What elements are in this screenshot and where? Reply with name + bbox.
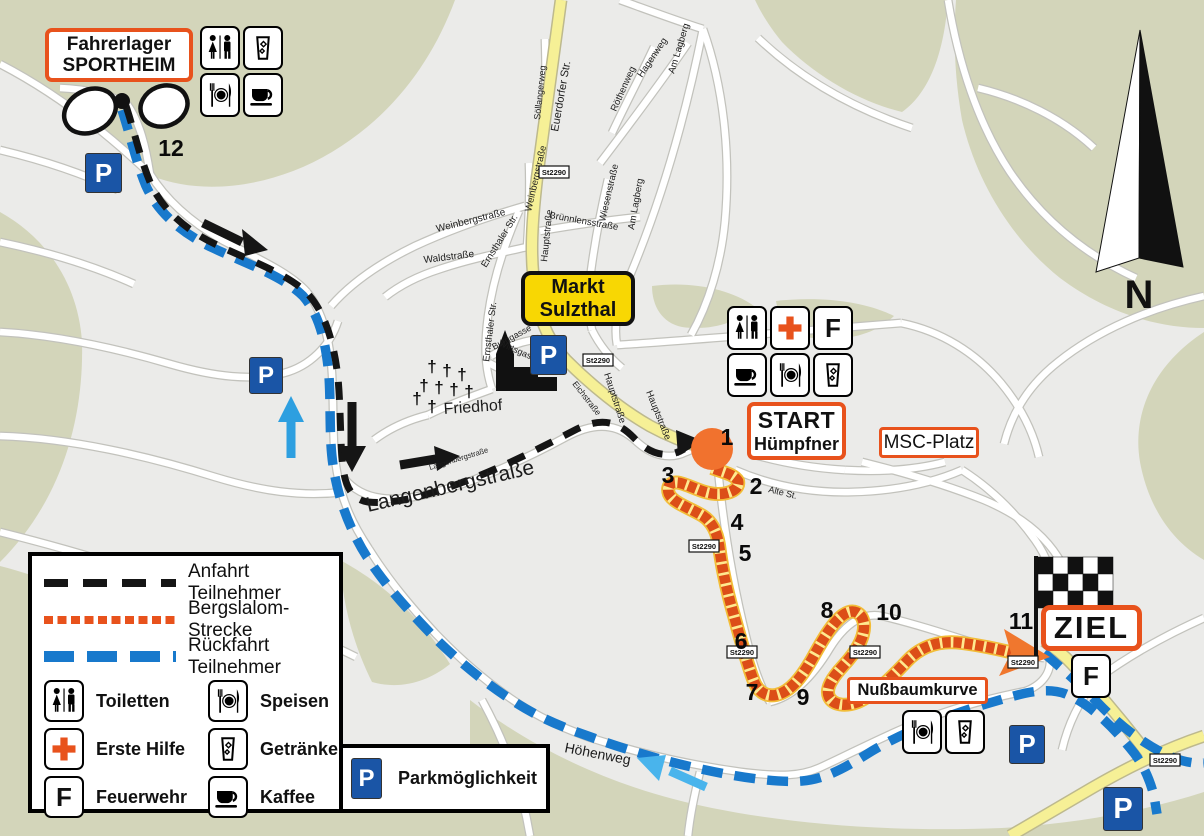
toilets-icon bbox=[44, 680, 84, 722]
parking-sign: P bbox=[1103, 787, 1143, 831]
legend-line-sample bbox=[44, 651, 176, 662]
first-aid-icon bbox=[44, 728, 84, 770]
flag-checker bbox=[1038, 557, 1053, 574]
road-badge-text: St2290 bbox=[542, 168, 566, 177]
road-badge-text: St2290 bbox=[586, 356, 610, 365]
flag-checker bbox=[1098, 557, 1113, 574]
legend-item-label: Speisen bbox=[260, 691, 338, 712]
food-icon bbox=[770, 353, 810, 397]
flag-checker bbox=[1053, 574, 1068, 591]
ziel-fire: F bbox=[1071, 654, 1111, 698]
course-number: 9 bbox=[797, 684, 810, 710]
parking-sign-icon: P bbox=[351, 758, 382, 799]
start-label: START Hümpfner bbox=[747, 402, 846, 460]
course-number: 7 bbox=[746, 679, 759, 705]
course-number: 4 bbox=[731, 509, 744, 535]
course-number: 11 bbox=[1009, 608, 1034, 634]
parking-sign: P bbox=[85, 153, 122, 193]
course-number: 3 bbox=[662, 462, 675, 488]
legend-item-label: Getränke bbox=[260, 739, 338, 760]
fahrerlager-label: Fahrerlager SPORTHEIM bbox=[45, 28, 193, 82]
flag-checker bbox=[1083, 574, 1098, 591]
legend: Anfahrt TeilnehmerBergslalom-StreckeRück… bbox=[28, 552, 343, 813]
coffee-icon bbox=[727, 353, 767, 397]
street-label: Am Lagberg bbox=[626, 178, 646, 231]
food-icon bbox=[902, 710, 942, 754]
coffee-icon bbox=[243, 73, 283, 117]
ziel-label: ZIEL bbox=[1041, 605, 1142, 651]
cemetery-cross: † bbox=[449, 380, 458, 399]
cemetery-cross: † bbox=[427, 357, 436, 376]
fire-brigade-icon: F bbox=[1071, 654, 1111, 698]
road-badge-text: St2290 bbox=[1153, 756, 1177, 765]
cemetery-cross: † bbox=[412, 389, 421, 408]
flag-checker bbox=[1068, 557, 1083, 574]
legend-line-anfahrt: Anfahrt Teilnehmer bbox=[44, 564, 335, 601]
legend-item-label: Toiletten bbox=[96, 691, 202, 712]
compass-label: N bbox=[1125, 273, 1154, 317]
street-label: Friedhof bbox=[443, 397, 503, 418]
legend-parking-label: Parkmöglichkeit bbox=[398, 768, 537, 789]
street-label: Weinbergstraße bbox=[435, 207, 507, 235]
map-canvas: ††††††††† N Euerdorfer Str.SöllangerwegR… bbox=[0, 0, 1204, 836]
parking-sign: P bbox=[1009, 725, 1045, 764]
drinks-icon bbox=[243, 26, 283, 70]
legend-line-strecke: Bergslalom-Strecke bbox=[44, 601, 335, 638]
road-badge-text: St2290 bbox=[692, 542, 716, 551]
legend-parking: P Parkmöglichkeit bbox=[339, 744, 550, 813]
msc-platz-label: MSC-Platz bbox=[879, 427, 979, 458]
road-badge-text: St2290 bbox=[853, 648, 877, 657]
course-number: 8 bbox=[821, 597, 834, 623]
road bbox=[862, 462, 1062, 564]
fire-brigade-icon: F bbox=[813, 306, 853, 350]
course-number: 6 bbox=[735, 628, 748, 654]
legend-line-sample bbox=[44, 616, 176, 624]
nussbaum-services bbox=[902, 710, 985, 754]
course-number: 2 bbox=[750, 473, 763, 499]
start-line2: Hümpfner bbox=[754, 434, 839, 454]
flag-checker bbox=[1083, 557, 1098, 574]
flag-checker bbox=[1098, 574, 1113, 591]
nussbaumkurve-label: Nußbaumkurve bbox=[847, 677, 988, 704]
markt-line1: Markt bbox=[551, 276, 604, 298]
fire-brigade-icon: F bbox=[44, 776, 84, 818]
paddock-node bbox=[114, 93, 130, 109]
flag-checker bbox=[1053, 557, 1068, 574]
flag-checker bbox=[1068, 574, 1083, 591]
course-number: 5 bbox=[739, 540, 752, 566]
legend-line-rueckfahrt: Rückfahrt Teilnehmer bbox=[44, 638, 335, 675]
street-label: Hauptstraße bbox=[539, 209, 555, 262]
drinks-icon bbox=[813, 353, 853, 397]
fahrerlager-services bbox=[200, 26, 283, 117]
course-number: 10 bbox=[876, 599, 902, 625]
markt-sulzthal-sign: Markt Sulzthal bbox=[521, 271, 635, 326]
legend-item-label: Feuerwehr bbox=[96, 787, 202, 808]
course-number: 12 bbox=[158, 135, 184, 161]
fahrerlager-line1: Fahrerlager bbox=[67, 34, 172, 55]
course-number: 1 bbox=[721, 424, 734, 450]
toilets-icon bbox=[200, 26, 240, 70]
legend-item-label: Erste Hilfe bbox=[96, 739, 202, 760]
food-icon bbox=[200, 73, 240, 117]
drinks-icon bbox=[208, 728, 248, 770]
coffee-icon bbox=[208, 776, 248, 818]
toilets-icon bbox=[727, 306, 767, 350]
legend-item-label: Kaffee bbox=[260, 787, 338, 808]
start-line1: START bbox=[758, 408, 835, 434]
first-aid-icon bbox=[770, 306, 810, 350]
road-badge-text: St2290 bbox=[1011, 658, 1035, 667]
legend-line-sample bbox=[44, 579, 176, 587]
road-casing bbox=[862, 462, 1062, 564]
cemetery-cross: † bbox=[427, 397, 436, 416]
drinks-icon bbox=[945, 710, 985, 754]
legend-line-label: Rückfahrt Teilnehmer bbox=[188, 635, 335, 679]
parking-sign: P bbox=[530, 335, 567, 375]
food-icon bbox=[208, 680, 248, 722]
start-services: F bbox=[727, 306, 853, 397]
road bbox=[620, 0, 703, 29]
cemetery-cross: † bbox=[434, 378, 443, 397]
road bbox=[374, 415, 428, 440]
fahrerlager-line2: SPORTHEIM bbox=[63, 55, 176, 76]
parking-sign: P bbox=[249, 357, 283, 394]
flag-checker bbox=[1038, 574, 1053, 591]
markt-line2: Sulzthal bbox=[540, 299, 617, 321]
